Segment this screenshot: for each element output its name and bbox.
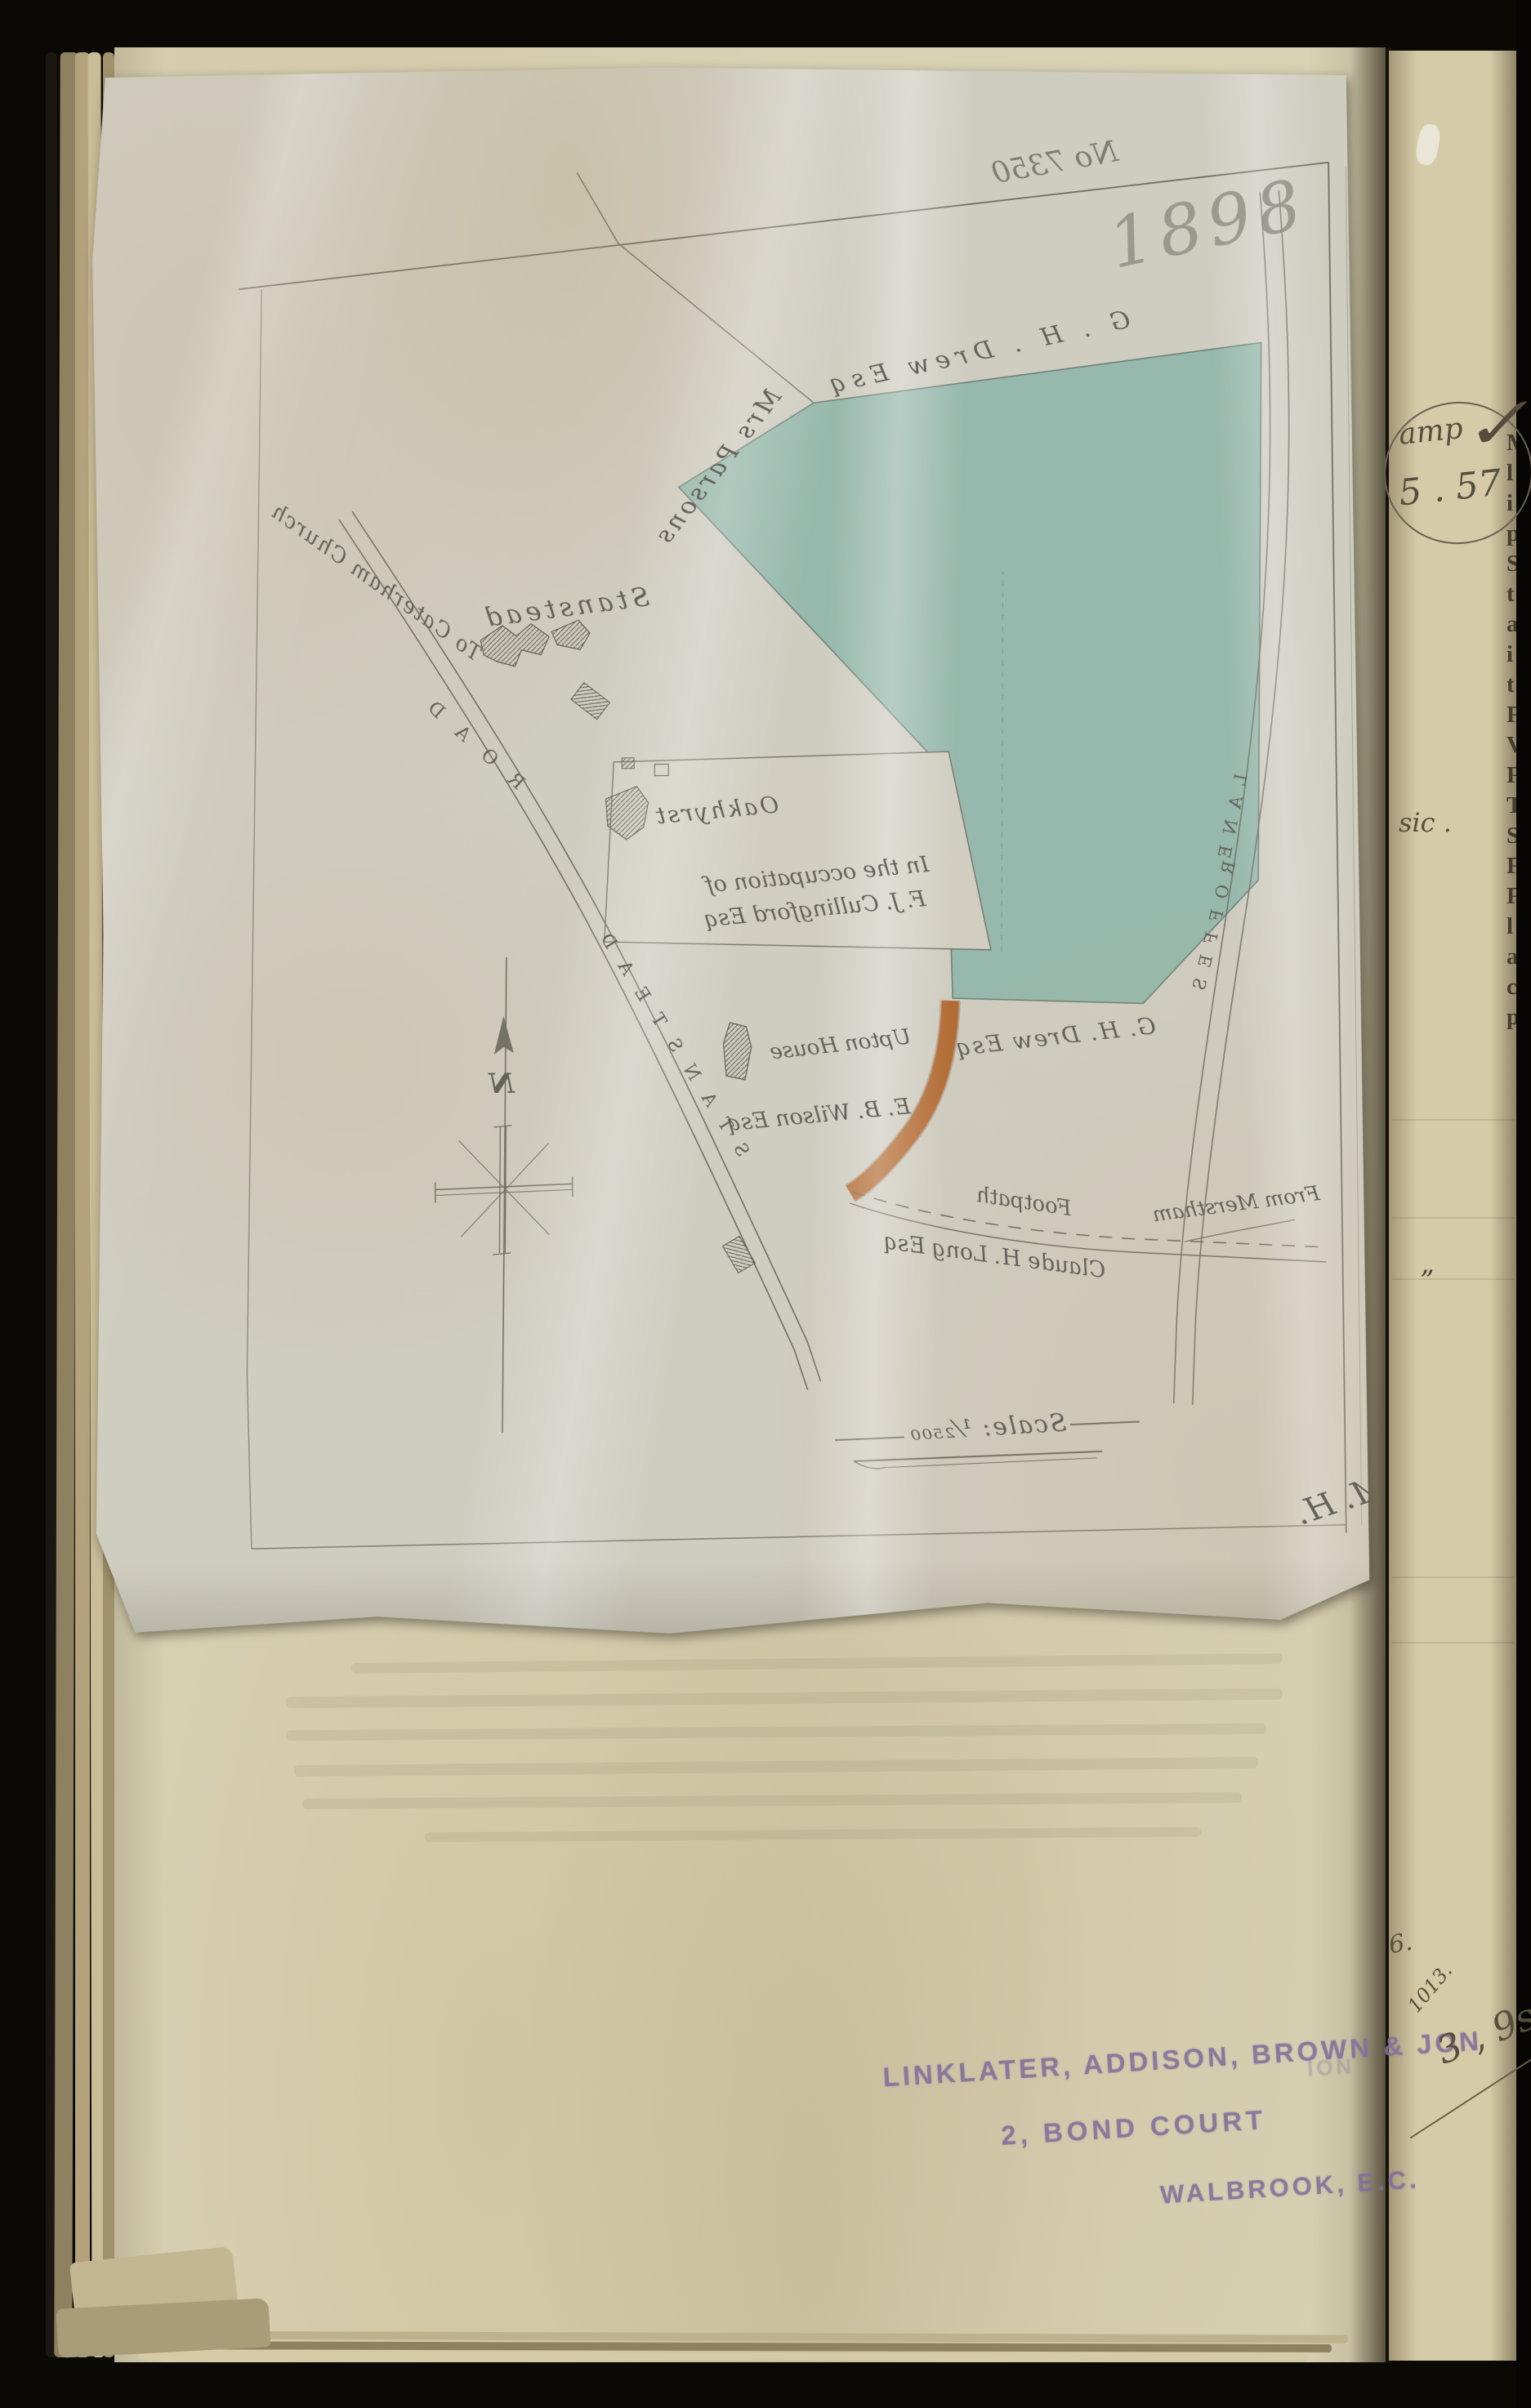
oakhyrst-outbuilding (622, 758, 634, 769)
ledger-note-a: 6. (1386, 1928, 1414, 1960)
road-hatch-band (722, 1236, 755, 1273)
map-border-right (1328, 163, 1346, 1533)
upton-house-building (723, 1023, 751, 1080)
ruled-line (1392, 1642, 1515, 1643)
compass-north-letter: N (489, 1068, 514, 1100)
ruled-line (1392, 1217, 1515, 1219)
oval-annotation-word: amp (1397, 412, 1465, 452)
road-hatch-band (571, 683, 610, 720)
ruled-line (1392, 1576, 1515, 1578)
tracing-paper-map: No 7350 1898 G . H . Drew Esq Mrs Parson… (86, 63, 1369, 1644)
photo-backdrop-edge (1516, 0, 1531, 2408)
stanstead-building (551, 620, 590, 649)
quote-mark: ” (1420, 1264, 1434, 1297)
map-border-bottom (252, 1525, 1346, 1549)
map-border-left (239, 289, 270, 1549)
map-border-right-outer (1346, 167, 1362, 1525)
boundary-line (577, 171, 814, 404)
map-linework (86, 63, 1369, 1644)
stamp-ghost-fragment: ION (1306, 2053, 1355, 2081)
photographed-deed-book: M l i p S t a i t F V F T S F F l a c p (0, 0, 1531, 2408)
compass-rose (434, 957, 574, 1433)
map-sheet-paper: No 7350 1898 G . H . Drew Esq Mrs Parson… (86, 63, 1369, 1644)
ruled-line (1392, 1278, 1515, 1280)
merstham-branch-line (1185, 1220, 1295, 1242)
sic-note: sic . (1399, 807, 1452, 838)
tick-mark-icon: ✓ (1452, 384, 1531, 466)
ruled-line (1392, 1119, 1515, 1121)
